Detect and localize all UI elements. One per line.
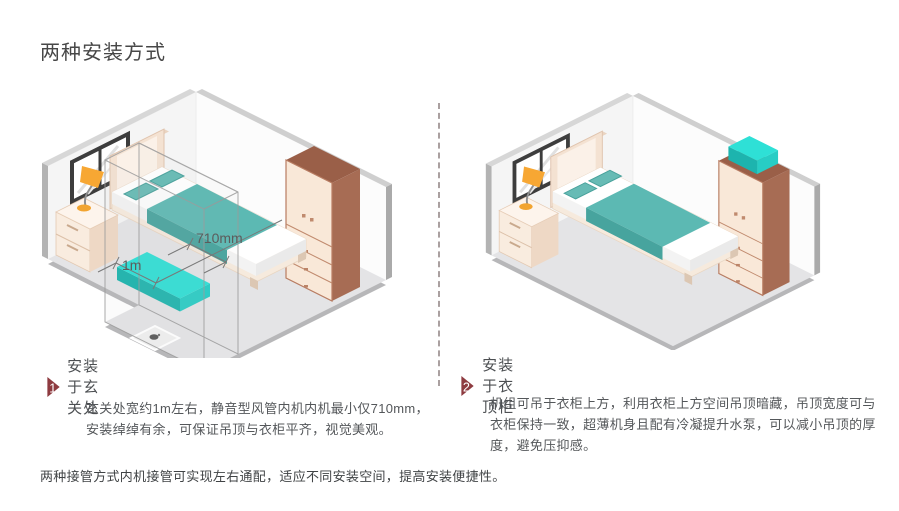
infographic-root: 两种安装方式 (0, 0, 899, 511)
step-1-badge: 1 (47, 360, 60, 414)
panel-divider (438, 103, 440, 386)
section-1-body: 玄关处宽约1m左右，静音型风管内机内机最小仅710mm，安装绰绰有余，可保证吊顶… (86, 398, 438, 440)
section-2-body: 机组可吊于衣柜上方，利用衣柜上方空间吊顶暗藏，吊顶宽度可与衣柜保持一致，超薄机身… (490, 393, 888, 456)
footer-note: 两种接管方式内机接管可实现左右通配，适应不同安装空间，提高安装便捷性。 (40, 466, 506, 485)
step-2-badge: 2 (461, 359, 474, 413)
wardrobe (286, 146, 360, 301)
page-title: 两种安装方式 (40, 36, 166, 65)
step-2-number: 2 (463, 380, 470, 394)
dimension-label-1m: 1m (122, 257, 141, 273)
bedroom-diagram-wardrobe-install (482, 90, 822, 350)
dimension-label-710mm: 710mm (196, 230, 243, 246)
bedroom-diagram-hallway-install: 710mm 1m (38, 86, 394, 358)
step-1-number: 1 (49, 381, 56, 395)
